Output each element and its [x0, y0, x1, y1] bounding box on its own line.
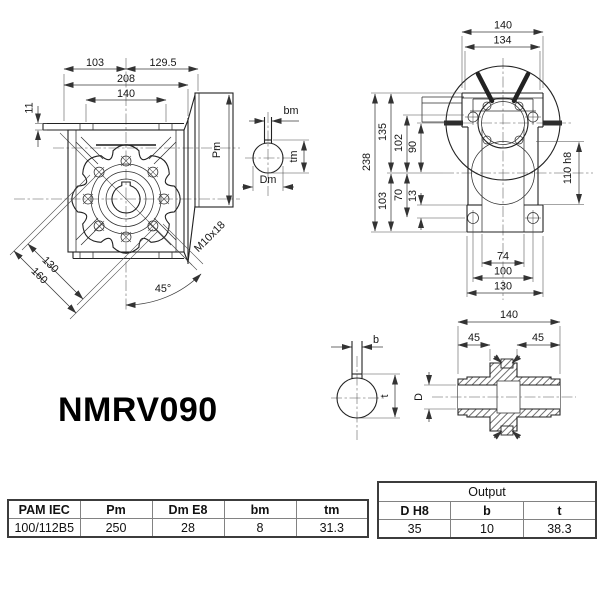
output-table-title-row: Output — [378, 482, 596, 502]
output-header-cell: D H8 — [378, 502, 451, 520]
output-header-cell: t — [523, 502, 596, 520]
output-value-cell: 35 — [378, 520, 451, 539]
side-dim-70: 70 — [393, 189, 405, 201]
pam-table-header-row: PAM IEC Pm Dm E8 bm tm — [8, 500, 368, 519]
front-dim-45deg: 45° — [155, 283, 171, 295]
side-clamp-screw-right — [514, 74, 528, 101]
side-dimensions: 140 134 238 135 103 102 70 90 13 — [361, 20, 584, 298]
pam-table-value-row: 100/112B5 250 28 8 31.3 — [8, 519, 368, 538]
front-dim-pm: Pm — [211, 142, 223, 158]
pam-value-cell: 31.3 — [296, 519, 368, 538]
pam-value-cell: 250 — [80, 519, 152, 538]
pam-value-cell: 100/112B5 — [8, 519, 80, 538]
output-table-header-row: D H8 b t — [378, 502, 596, 520]
output-bore-dim-t: t — [379, 395, 391, 398]
pam-header-cell: Dm E8 — [152, 500, 224, 519]
side-dim-90: 90 — [407, 141, 419, 153]
output-table-title: Output — [378, 482, 596, 502]
side-view: 140 134 238 135 103 102 70 90 13 — [361, 20, 593, 301]
side-dim-74: 74 — [497, 251, 509, 263]
side-input-shaft-stub-right — [543, 121, 562, 126]
side-dim-110h8: 110 h8 — [562, 152, 574, 184]
pam-header-cell: tm — [296, 500, 368, 519]
pam-header-cell: Pm — [80, 500, 152, 519]
motor-bore-dim-dm: Dm — [260, 174, 277, 186]
front-dim-208: 208 — [117, 73, 135, 85]
side-dim-140: 140 — [494, 20, 512, 32]
side-dim-102: 102 — [393, 134, 405, 152]
front-top-rail — [43, 124, 184, 131]
output-value-cell: 10 — [451, 520, 524, 539]
side-input-shaft-stub-left — [444, 121, 463, 126]
front-thread-callout: M10x18 — [192, 219, 228, 255]
output-table-value-row: 35 10 38.3 — [378, 520, 596, 539]
output-header-cell: b — [451, 502, 524, 520]
output-value-cell: 38.3 — [523, 520, 596, 539]
gearbox-datasheet-page: { "title": "NMRV090", "front": { "d103":… — [0, 0, 600, 600]
front-dimensions: 103 129.5 208 140 11 Pm 130 160 45° — [10, 57, 229, 319]
side-body — [462, 93, 543, 232]
side-clamp-screw-left — [478, 74, 492, 101]
motor-bore-dim-bm: bm — [284, 105, 299, 117]
motor-bore-detail: bm tm Dm — [242, 105, 309, 196]
shaft-dim-D: D — [413, 393, 425, 401]
front-view: 103 129.5 208 140 11 Pm 130 160 45° — [10, 57, 240, 319]
side-dim-130: 130 — [494, 281, 512, 293]
front-dim-103: 103 — [86, 57, 104, 69]
side-dim-103: 103 — [377, 192, 389, 210]
side-dim-13: 13 — [407, 190, 419, 202]
pam-header-cell: bm — [224, 500, 296, 519]
side-dim-238: 238 — [361, 153, 373, 171]
front-dim-129-5: 129.5 — [149, 57, 176, 69]
pam-table: PAM IEC Pm Dm E8 bm tm 100/112B5 250 28 … — [7, 499, 369, 538]
shaft-dim-140: 140 — [500, 309, 518, 321]
pam-header-cell: PAM IEC — [8, 500, 80, 519]
output-table: Output D H8 b t 35 10 38.3 — [377, 481, 597, 539]
pam-value-cell: 8 — [224, 519, 296, 538]
side-dim-100: 100 — [494, 266, 512, 278]
side-foot — [467, 205, 543, 232]
pam-value-cell: 28 — [152, 519, 224, 538]
output-bore-detail: b t — [331, 334, 400, 440]
output-shaft-key-top — [501, 359, 513, 368]
output-bore-dim-b: b — [373, 334, 379, 346]
side-dim-135: 135 — [377, 123, 389, 141]
front-dim-11: 11 — [24, 102, 36, 113]
front-dim-140: 140 — [117, 88, 135, 100]
shaft-dim-45-right: 45 — [532, 332, 544, 344]
model-title: NMRV090 — [58, 391, 218, 430]
side-dim-134: 134 — [493, 35, 511, 47]
motor-bore-dim-tm: tm — [288, 151, 300, 163]
side-input-boss — [422, 97, 464, 122]
output-shaft-detail: 140 45 45 D — [413, 309, 576, 438]
shaft-dim-45-left: 45 — [468, 332, 480, 344]
output-shaft-key-bottom — [501, 426, 513, 435]
